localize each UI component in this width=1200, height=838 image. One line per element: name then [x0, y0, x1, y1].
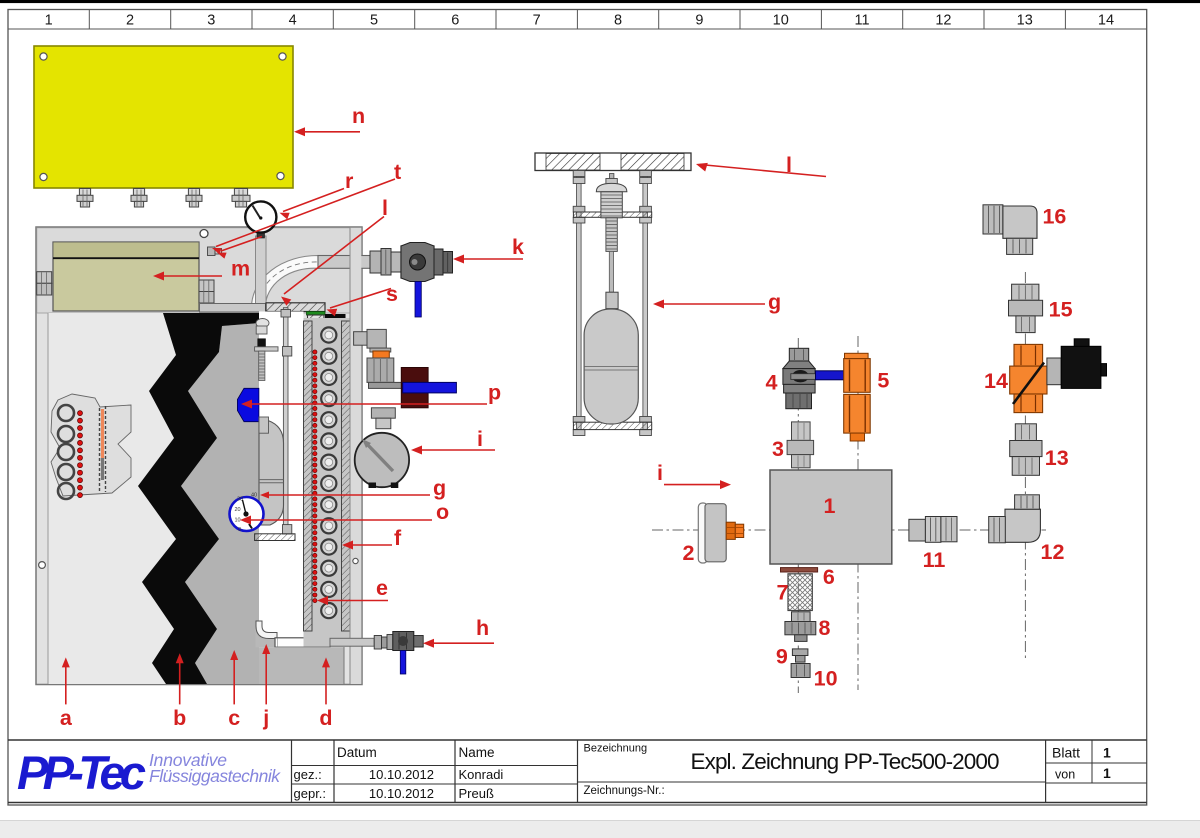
- svg-text:Blatt: Blatt: [1052, 745, 1080, 761]
- svg-text:2: 2: [683, 541, 695, 565]
- svg-text:40: 40: [251, 493, 257, 499]
- svg-text:3: 3: [207, 13, 215, 29]
- svg-text:9: 9: [776, 645, 788, 669]
- svg-text:i: i: [657, 461, 663, 485]
- svg-text:a: a: [60, 706, 73, 730]
- svg-text:f: f: [394, 526, 402, 550]
- svg-text:Expl. Zeichnung PP-Tec500-2000: Expl. Zeichnung PP-Tec500-2000: [691, 749, 1000, 774]
- svg-text:e: e: [376, 576, 388, 600]
- svg-text:6: 6: [823, 565, 835, 589]
- svg-text:1: 1: [1103, 745, 1111, 761]
- svg-text:11: 11: [854, 13, 869, 29]
- svg-text:d: d: [319, 706, 332, 730]
- svg-text:m: m: [231, 257, 250, 281]
- svg-text:1: 1: [1103, 765, 1111, 781]
- svg-text:3: 3: [772, 437, 784, 461]
- svg-text:7: 7: [533, 13, 541, 29]
- svg-text:g: g: [768, 290, 781, 314]
- svg-text:5: 5: [877, 369, 889, 393]
- svg-text:t: t: [394, 160, 401, 184]
- svg-text:n: n: [352, 104, 365, 128]
- svg-text:2: 2: [126, 13, 134, 29]
- svg-text:15: 15: [1049, 298, 1073, 322]
- svg-text:11: 11: [923, 548, 946, 572]
- svg-text:10: 10: [814, 667, 838, 691]
- svg-text:4: 4: [289, 13, 297, 29]
- svg-text:Datum: Datum: [337, 745, 377, 760]
- svg-text:o: o: [436, 500, 449, 524]
- svg-text:Preuß: Preuß: [459, 786, 494, 801]
- svg-text:Name: Name: [459, 745, 495, 760]
- svg-text:r: r: [345, 169, 354, 193]
- svg-text:10: 10: [773, 13, 789, 29]
- svg-text:gez.:: gez.:: [294, 767, 322, 782]
- svg-text:p: p: [488, 381, 501, 405]
- svg-text:16: 16: [1042, 204, 1066, 228]
- svg-text:20: 20: [235, 507, 241, 513]
- svg-text:s: s: [386, 282, 398, 306]
- svg-text:Bezeichnung: Bezeichnung: [584, 743, 648, 755]
- svg-text:6: 6: [451, 13, 459, 29]
- svg-text:von: von: [1055, 768, 1075, 782]
- svg-text:9: 9: [695, 13, 703, 29]
- svg-text:8: 8: [614, 13, 622, 29]
- svg-text:1: 1: [45, 13, 53, 29]
- svg-text:j: j: [262, 706, 269, 730]
- svg-text:5: 5: [370, 13, 378, 29]
- svg-text:13: 13: [1017, 13, 1033, 29]
- svg-text:7: 7: [777, 581, 789, 605]
- svg-text:l: l: [382, 196, 388, 220]
- svg-text:PP-Tec: PP-Tec: [17, 746, 146, 799]
- svg-text:0: 0: [238, 527, 241, 533]
- svg-text:14: 14: [1098, 13, 1114, 29]
- svg-text:l: l: [786, 153, 792, 177]
- svg-text:4: 4: [766, 371, 778, 395]
- svg-text:8: 8: [819, 616, 831, 640]
- svg-text:14: 14: [984, 369, 1008, 393]
- svg-text:12: 12: [1041, 540, 1065, 564]
- svg-text:h: h: [476, 616, 489, 640]
- svg-text:i: i: [477, 427, 483, 451]
- svg-text:Konradi: Konradi: [459, 767, 504, 782]
- svg-text:12: 12: [935, 13, 951, 29]
- svg-text:gepr.:: gepr.:: [294, 786, 327, 801]
- svg-text:c: c: [228, 706, 240, 730]
- svg-text:10: 10: [235, 518, 241, 524]
- svg-text:k: k: [512, 235, 524, 259]
- svg-text:1: 1: [824, 494, 836, 518]
- svg-text:Zeichnungs-Nr.:: Zeichnungs-Nr.:: [584, 785, 665, 797]
- svg-text:g: g: [433, 476, 446, 500]
- svg-text:10.10.2012: 10.10.2012: [369, 767, 434, 782]
- svg-text:13: 13: [1045, 446, 1069, 470]
- svg-text:b: b: [173, 706, 186, 730]
- svg-text:10.10.2012: 10.10.2012: [369, 786, 434, 801]
- svg-text:Flüssiggastechnik: Flüssiggastechnik: [149, 766, 281, 786]
